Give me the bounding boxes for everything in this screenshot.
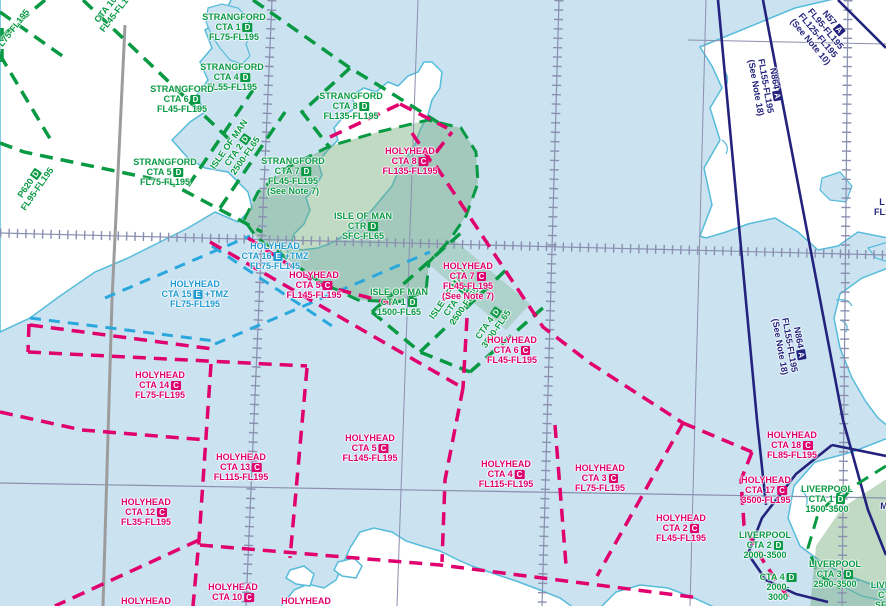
airspace-class-badge: D [844,570,854,579]
airspace-label-holyhead-cta6: HOLYHEADCTA 6CFL45-FL195 [487,335,537,365]
airspace-label-holyhead-cta4: HOLYHEADCTA 4CFL115-FL195 [479,459,534,489]
airspace-label-n864-airway-north: N864AFL155-FL195(See Note 18) [746,55,785,116]
airspace-label-holyhead-cta5-north: HOLYHEADCTA 5CFL145-FL195 [286,270,341,300]
airspace-label-holyhead-cta2: HOLYHEADCTA 2CFL45-FL195 [656,513,706,543]
airspace-label-n57-airway: N57AFL95-FL195FL125-FL195(See Note 10) [788,0,855,67]
airspace-class-badge: C [171,381,181,390]
airspace-class-badge: C [777,486,787,495]
airspace-class-badge: E [273,252,282,261]
airspace-label-strangford-cta1: STRANGFORDCTA 1DFL75-FL195 [202,12,266,42]
airspace-label-holyhead-cta18: HOLYHEADCTA 18CFL85-FL195 [767,430,817,460]
airspace-label-right-edge-fragment: LFL1 [874,197,886,217]
airspace-label-holyhead-cta17: HOLYHEADCTA 17C3500-FL195 [741,475,791,505]
airspace-class-badge: C [690,524,700,533]
airspace-label-liverpool-cta2: LIVERPOOLCTA 2D2000-3500 [739,530,791,560]
airspace-class-badge: C [477,272,487,281]
airspace-class-badge: C [419,157,429,166]
airspace-label-strangford-cta8: STRANGFORDCTA 8DFL135-FL195 [319,91,383,121]
airspace-class-badge: C [157,508,167,517]
airspace-label-holyhead-cta16: HOLYHEADCTA 16E+TMZFL75-FL145 [241,241,308,271]
airspace-class-badge: C [521,346,531,355]
airspace-class-badge: D [774,541,784,550]
airspace-label-liverpool-cta3: LIVERPOOLCTA 3D2500-3500 [809,559,861,589]
airspace-class-badge: D [360,102,370,111]
airspace-class-badge: C [379,444,389,453]
airspace-class-badge: C [803,441,813,450]
airspace-class-badge: D [243,23,253,32]
airspace-class-badge: D [787,573,797,582]
airspace-class-badge: C [252,463,262,472]
airspace-labels-layer: STRANGFORDCTA 1DFL75-FL195STRANGFORDCTA … [0,0,886,606]
airspace-label-holyhead-cta5-south: HOLYHEADCTA 5CFL145-FL195 [342,433,397,463]
airspace-label-holyhead-cta3: HOLYHEADCTA 3CFL75-FL195 [575,463,625,493]
airspace-class-badge: C [515,470,525,479]
airspace-class-badge: E [193,290,202,299]
airspace-label-isle-of-man-cta2: ISLE OF MANCTA 2D2500-FL65 [208,118,266,183]
airspace-label-holyhead-cta15: HOLYHEADCTA 15E+TMZFL75-FL195 [161,279,228,309]
aeronautical-chart[interactable]: STRANGFORDCTA 1DFL75-FL195STRANGFORDCTA … [0,0,886,606]
airspace-label-holyhead-cta8: HOLYHEADCTA 8CFL135-FL195 [382,146,437,176]
airspace-label-strangford-cta5: STRANGFORDCTA 5DFL75-FL195 [133,157,197,187]
airspace-label-corner-fragment: FL75-FL195 [0,7,31,53]
airspace-label-right-edge-fragment-m: M [880,501,886,511]
airspace-class-badge: D [174,168,184,177]
airspace-label-liverpool-cta1: LIVERPOOLCTA 1D1500-3500 [801,484,853,514]
airspace-class-badge: D [191,95,201,104]
airspace-label-top-fragment: CTA 10DFL45-FL195 [90,0,137,34]
airspace-label-isle-of-man-cta1: ISLE OF MANCTA 1D1500-FL65 [370,287,428,317]
airspace-label-holyhead-cta10: HOLYHEADCTA 10C [208,582,258,602]
airspace-label-strangford-cta7: STRANGFORDCTA 7DFL45-FL195(See Note 7) [261,156,325,196]
airspace-class-badge: D [241,73,251,82]
airspace-class-badge: D [302,167,312,176]
airspace-class-badge: D [368,222,378,231]
airspace-label-strangford-cta6: STRANGFORDCTA 6DFL45-FL195 [150,84,214,114]
airspace-label-holyhead-cta12: HOLYHEADCTA 12CFL35-FL195 [121,497,171,527]
airspace-label-n864-airway-south: N864AFL155-FL195(See Note 18) [770,314,809,375]
airspace-class-badge: C [323,281,333,290]
airspace-class-badge: D [836,495,846,504]
airspace-label-holyhead-cta7: HOLYHEADCTA 7CFL45-FL195(See Note 7) [442,261,494,301]
airspace-label-holyhead-cta14: HOLYHEADCTA 14CFL75-FL195 [135,370,185,400]
airspace-label-holyhead-fragment-left: HOLYHEAD [121,596,171,606]
airspace-label-liverpool-corner-fragment: LIVERCTSFC [871,580,886,606]
airspace-label-holyhead-cta13: HOLYHEADCTA 13CFL115-FL195 [214,452,269,482]
airspace-label-p620: P620DFL95-FL195 [10,160,55,212]
airspace-label-holyhead-fragment-mid: HOLYHEAD [281,596,331,606]
airspace-class-badge: C [609,474,619,483]
airspace-label-isle-of-man-ctr: ISLE OF MANCTRDSFC-FL65 [334,211,392,241]
airspace-class-badge: D [408,298,418,307]
airspace-class-badge: C [244,593,254,602]
airspace-label-liverpool-cta4: CTA 4D2000-3000 [760,572,797,602]
